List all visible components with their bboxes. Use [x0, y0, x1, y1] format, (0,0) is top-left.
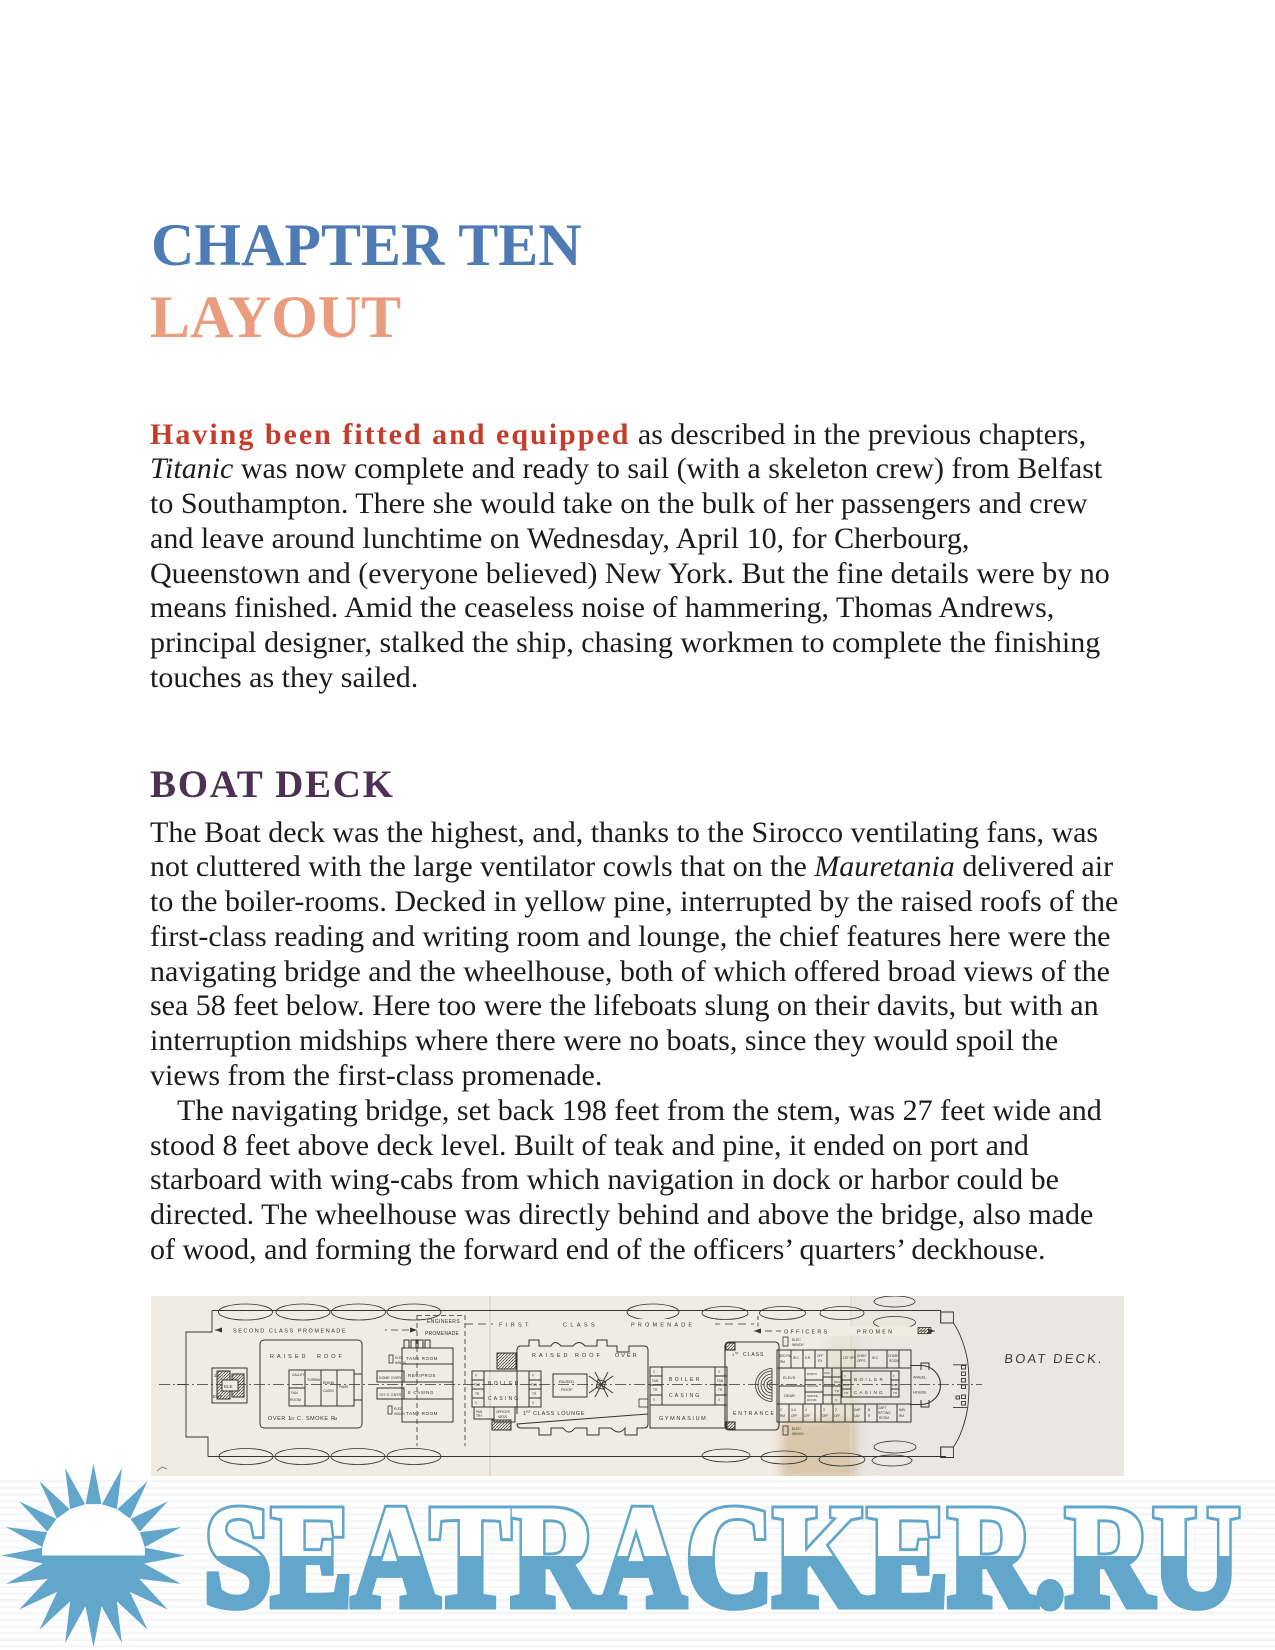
svg-text:OFF: OFF	[804, 1414, 810, 1418]
svg-text:TR: TR	[718, 1388, 723, 1392]
svg-text:OFFICE: OFFICE	[807, 1384, 818, 1388]
svg-text:B: B	[868, 1408, 870, 1412]
svg-text:RAISED: RAISED	[270, 1354, 308, 1360]
svg-text:ENGINEERS: ENGINEERS	[427, 1319, 460, 1325]
svg-text:HOUSE: HOUSE	[913, 1391, 927, 1395]
svg-text:TR: TR	[475, 1392, 480, 1396]
svg-text:ST: ST	[290, 1416, 296, 1421]
svg-text:FAN: FAN	[291, 1391, 298, 1395]
svg-text:W.C: W.C	[793, 1356, 800, 1360]
svg-text:ELEC: ELEC	[792, 1338, 801, 1342]
svg-text:ROOF: ROOF	[575, 1353, 603, 1359]
svg-text:ROOF: ROOF	[317, 1354, 345, 1360]
svg-text:CLASS LOUNGE: CLASS LOUNGE	[533, 1411, 585, 1417]
svg-text:1ST OFF: 1ST OFF	[843, 1356, 856, 1360]
svg-text:ROOM: ROOM	[807, 1398, 817, 1402]
svg-text:TR: TR	[653, 1388, 658, 1392]
svg-text:PANTO: PANTO	[807, 1372, 818, 1376]
svg-text:DOME OVER: DOME OVER	[379, 1376, 401, 1380]
svg-text:W.C: W.C	[872, 1356, 879, 1360]
svg-text:MESS: MESS	[498, 1415, 507, 1419]
svg-text:S.R.: S.R.	[805, 1356, 811, 1360]
svg-text:ENT: ENT	[213, 1394, 222, 1399]
svg-text:ELEC: ELEC	[395, 1356, 404, 1360]
svg-text:WINCH: WINCH	[792, 1432, 804, 1436]
svg-text:3-4: 3-4	[791, 1408, 796, 1412]
svg-text:ST: ST	[526, 1409, 532, 1414]
svg-text:OFFICER: OFFICER	[496, 1410, 511, 1414]
svg-text:GEAR: GEAR	[784, 1394, 795, 1398]
svg-text:RM: RM	[780, 1360, 785, 1364]
svg-text:CAP: CAP	[854, 1408, 861, 1412]
svg-text:BOILER: BOILER	[854, 1377, 885, 1382]
svg-text:FAN: FAN	[892, 1383, 898, 1387]
svg-text:CASING: CASING	[669, 1393, 701, 1399]
svg-text:TANK ROOM: TANK ROOM	[406, 1411, 438, 1416]
svg-text:WHEEL: WHEEL	[913, 1376, 927, 1380]
svg-text:RAISED: RAISED	[532, 1353, 570, 1359]
svg-text:LAV: LAV	[854, 1414, 861, 1418]
svg-text:CASING: CASING	[854, 1390, 885, 1395]
svg-text:BED RM: BED RM	[779, 1354, 792, 1358]
svg-text:ELEC: ELEC	[792, 1427, 801, 1431]
svg-text:ENTRANCE: ENTRANCE	[733, 1411, 776, 1417]
svg-text:1ST G. ENTR: 1ST G. ENTR	[379, 1393, 402, 1397]
svg-text:FAN: FAN	[843, 1383, 849, 1387]
svg-text:F: F	[893, 1374, 895, 1378]
svg-text:SECOND CLASS PROMENADE: SECOND CLASS PROMENADE	[233, 1329, 347, 1335]
svg-text:TANK ROOM: TANK ROOM	[406, 1356, 438, 1361]
svg-text:E CASING: E CASING	[408, 1390, 434, 1395]
svg-text:OFFICERS: OFFICERS	[784, 1330, 829, 1336]
svg-text:BOILER: BOILER	[669, 1377, 702, 1383]
svg-text:WINCH: WINCH	[792, 1343, 804, 1347]
svg-text:CAPT: CAPT	[878, 1406, 887, 1410]
svg-text:ENGIN: ENGIN	[323, 1381, 335, 1385]
svg-text:PROMENADE: PROMENADE	[631, 1323, 695, 1329]
svg-text:ROOM: ROOM	[290, 1398, 301, 1402]
svg-text:WINCH: WINCH	[395, 1361, 406, 1365]
svg-text:RM: RM	[899, 1414, 904, 1418]
svg-text:M: M	[334, 1416, 337, 1421]
svg-text:ELEVS: ELEVS	[783, 1376, 796, 1380]
svg-text:BOILER: BOILER	[488, 1381, 521, 1387]
svg-text:TRY: TRY	[476, 1414, 483, 1418]
svg-text:2: 2	[780, 1408, 782, 1412]
svg-text:PROMEN: PROMEN	[857, 1330, 894, 1336]
svg-text:PROMENADE: PROMENADE	[425, 1331, 459, 1337]
svg-text:CASING: CASING	[488, 1396, 520, 1402]
svg-text:NAV: NAV	[899, 1408, 906, 1412]
svg-text:ROOM: ROOM	[879, 1416, 889, 1420]
svg-text:CHART: CHART	[888, 1354, 899, 1358]
svg-text:BOAT DECK.: BOAT DECK.	[1004, 1351, 1105, 1366]
svg-text:OFFS: OFFS	[857, 1359, 866, 1363]
svg-text:FAN: FAN	[531, 1383, 538, 1387]
svg-text:TURBIN: TURBIN	[307, 1378, 321, 1382]
svg-text:OVER: OVER	[615, 1353, 639, 1359]
svg-text:3: 3	[823, 1408, 825, 1412]
svg-text:OFF: OFF	[791, 1414, 797, 1418]
svg-text:ROOF: ROOF	[561, 1387, 573, 1392]
svg-text:ROOM: ROOM	[889, 1359, 899, 1363]
svg-text:GYMNASIUM: GYMNASIUM	[659, 1416, 707, 1422]
svg-text:FAN: FAN	[474, 1383, 481, 1387]
svg-text:V: V	[835, 1398, 837, 1402]
svg-text:GALLEY: GALLEY	[292, 1373, 305, 1377]
svg-text:OFF: OFF	[817, 1354, 823, 1358]
svg-text:OFF: OFF	[822, 1414, 828, 1418]
svg-text:ST: ST	[735, 1351, 739, 1355]
svg-text:PANS: PANS	[339, 1385, 349, 1389]
svg-text:V: V	[844, 1374, 846, 1378]
svg-text:CLASS: CLASS	[563, 1323, 598, 1329]
svg-text:WINCH: WINCH	[394, 1412, 405, 1416]
svg-text:OVER 1: OVER 1	[268, 1416, 292, 1422]
svg-text:ELE: ELE	[224, 1384, 233, 1389]
svg-text:4: 4	[805, 1408, 807, 1412]
svg-text:RECIPROS: RECIPROS	[408, 1373, 436, 1378]
svg-text:2: 2	[835, 1408, 837, 1412]
svg-text:ELEC: ELEC	[394, 1407, 403, 1411]
svg-text:CHIEF: CHIEF	[857, 1354, 867, 1358]
svg-text:FAN: FAN	[834, 1380, 840, 1384]
svg-text:SITTING: SITTING	[878, 1411, 891, 1415]
svg-text:RAISED: RAISED	[559, 1379, 574, 1384]
svg-text:TR: TR	[532, 1392, 537, 1396]
svg-text:OFF: OFF	[824, 1371, 830, 1375]
svg-text:FIRST: FIRST	[499, 1323, 532, 1329]
svg-text:CASIN: CASIN	[323, 1389, 334, 1393]
svg-text:CLASS: CLASS	[743, 1352, 764, 1358]
svg-text:2 C: 2 C	[214, 1373, 222, 1378]
svg-text:C. SMOKE R: C. SMOKE R	[297, 1416, 335, 1422]
svg-text:FAN: FAN	[652, 1379, 659, 1383]
svg-text:RM: RM	[780, 1414, 785, 1418]
svg-text:OFF: OFF	[834, 1414, 840, 1418]
svg-text:FAN: FAN	[717, 1379, 724, 1383]
